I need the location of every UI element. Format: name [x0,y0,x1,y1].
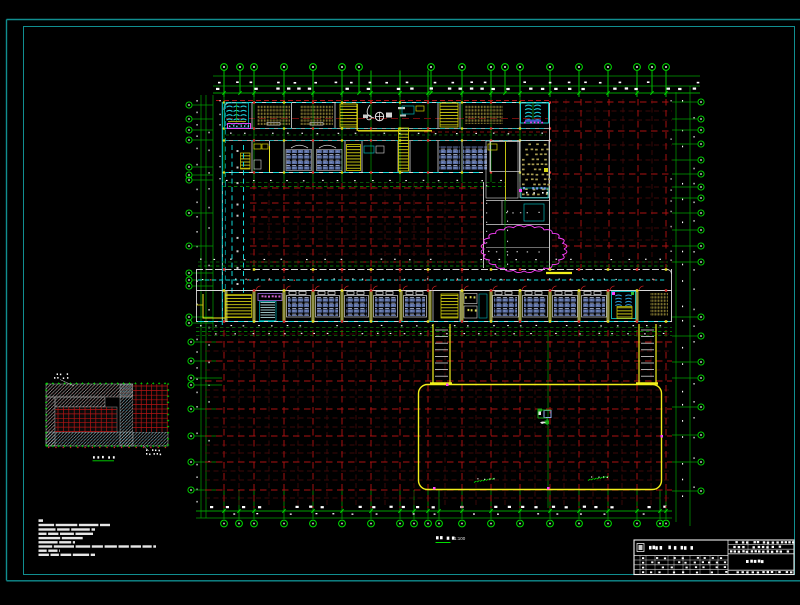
svg-text:1:100: 1:100 [454,536,466,541]
